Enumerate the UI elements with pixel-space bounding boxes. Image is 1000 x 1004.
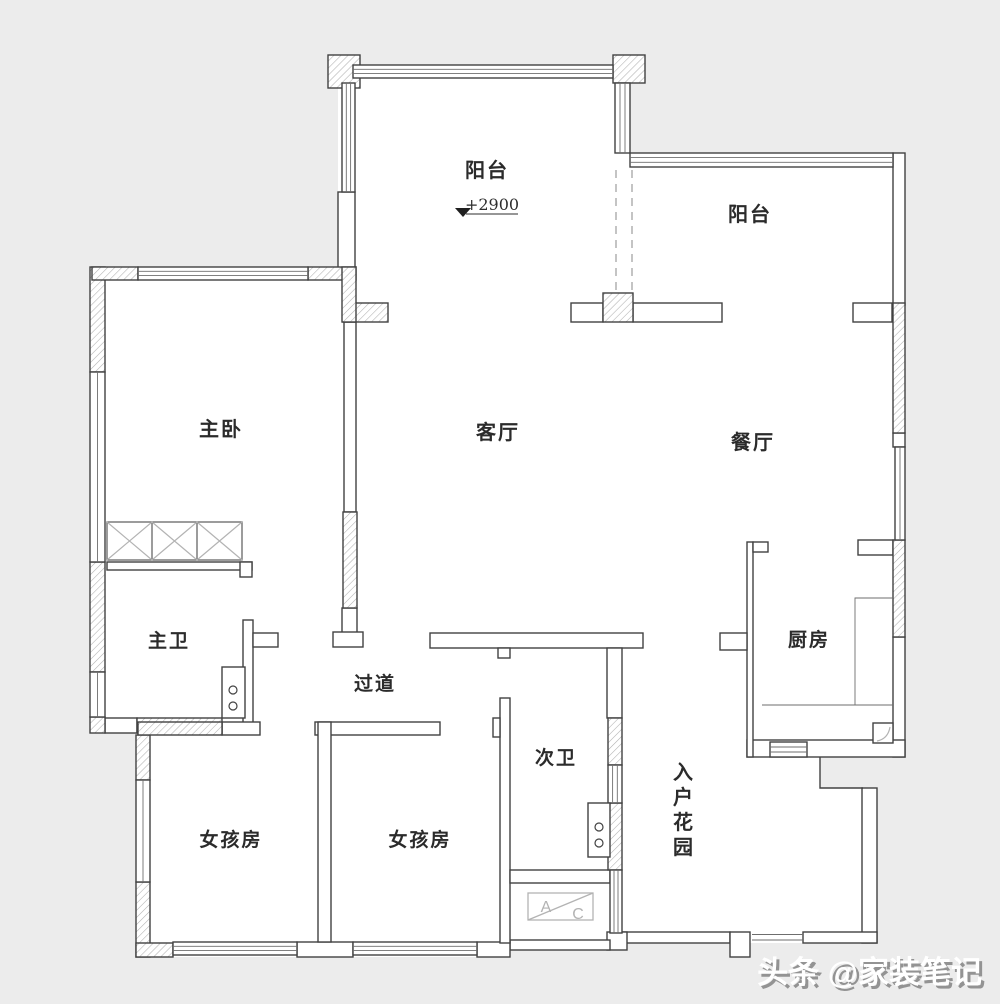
window-ac-right <box>610 870 622 933</box>
window-master-bath-left <box>90 672 105 717</box>
window-girl2-bottom <box>353 942 477 955</box>
watermark-text: 头条 @家装笔记 <box>757 955 982 990</box>
ac-letter-c: C <box>572 906 584 923</box>
kitchen-door-corner <box>873 723 893 743</box>
ac-unit: A C <box>528 893 593 923</box>
room-label-girl-room-2: 女孩房 <box>388 828 451 851</box>
elevation-annotation: +2900 <box>455 195 519 217</box>
window-second-bath-right <box>608 765 622 803</box>
room-label-second-bath: 次卫 <box>535 746 577 769</box>
room-label-kitchen: 厨房 <box>788 628 830 651</box>
room-label-master-bedroom: 主卧 <box>199 417 243 441</box>
ac-letter-a: A <box>541 899 552 916</box>
window-dining-right <box>895 447 905 540</box>
room-label-corridor: 过道 <box>354 672 396 695</box>
room-label-master-bath: 主卫 <box>148 630 190 652</box>
floorplan-svg: A C +2900 阳台 阳台 主卧 客厅 餐厅 主卫 过道 厨房 次卫 女孩房… <box>0 0 1000 1004</box>
pipe-shaft-second-bath <box>588 803 610 857</box>
window-girl1-left <box>136 780 150 882</box>
floorplan-page: A C +2900 阳台 阳台 主卧 客厅 餐厅 主卫 过道 厨房 次卫 女孩房… <box>0 0 1000 1004</box>
room-label-living-room: 客厅 <box>475 420 520 444</box>
room-label-girl-room-1: 女孩房 <box>199 828 262 851</box>
room-label-balcony-right: 阳台 <box>728 202 772 226</box>
watermark: 头条 @家装笔记 头条 @家装笔记 <box>757 955 985 993</box>
room-label-dining-room: 餐厅 <box>731 430 775 454</box>
elevation-value: +2900 <box>465 195 519 214</box>
window-balcony-left <box>342 83 355 192</box>
room-label-balcony-top: 阳台 <box>465 158 509 182</box>
window-balcony-top <box>353 65 613 78</box>
svg-text:花: 花 <box>673 811 693 834</box>
svg-text:户: 户 <box>673 785 693 809</box>
window-kitchen-bottom <box>770 742 807 757</box>
svg-text:入: 入 <box>673 761 693 784</box>
pipe-shaft-master-bath <box>222 667 245 718</box>
wardrobe <box>107 522 242 560</box>
window-girl1-bottom <box>173 942 297 955</box>
window-master-left <box>90 372 105 562</box>
window-master-top <box>138 267 308 280</box>
svg-text:园: 园 <box>673 837 693 859</box>
